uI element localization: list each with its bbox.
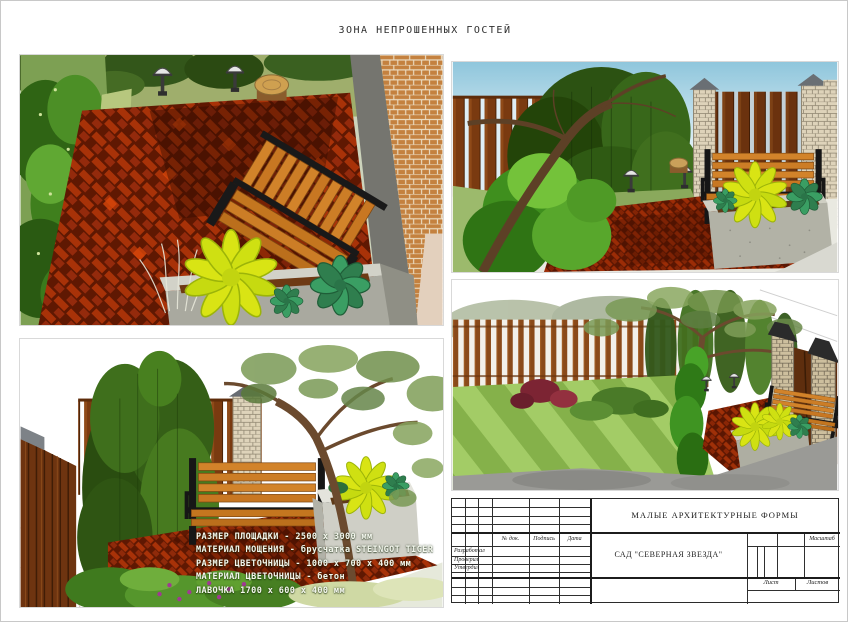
sheet-label: Лист [747,577,795,590]
spec-line: РАЗМЕР ЦВЕТОЧНИЦЫ - 1000 х 700 х 400 мм [196,558,433,571]
spec-line: РАЗМЕР ПЛОЩАДКИ - 2500 х 3000 мм [196,531,433,544]
render-bench-corner [451,61,839,273]
green-hosta-small [713,189,737,213]
bench-corner-illustration [452,62,838,272]
role-developed: Разработал [452,546,492,556]
role-approved: Утвердил [452,564,492,572]
header-date: Дата [559,532,590,546]
green-hosta [310,256,370,316]
green-hosta [787,179,823,215]
scale-label: Масштаб [804,532,840,546]
specifications-overlay: РАЗМЕР ПЛОЩАДКИ - 2500 х 3000 мм МАТЕРИА… [196,531,433,598]
header-doc-number: № док. [492,532,529,546]
stump-table [670,158,688,173]
aerial-courtyard-illustration [20,55,443,325]
spec-line: МАТЕРИАЛ ЦВЕТОЧНИЦЫ - бетон [196,571,433,584]
page-title: ЗОНА НЕПРОШЕННЫХ ГОСТЕЙ [1,25,848,36]
title-block: № док. Подпись Дата Разработал Проверил … [451,498,839,603]
drawing-sheet: ЗОНА НЕПРОШЕННЫХ ГОСТЕЙ [0,0,848,622]
section-title: МАЛЫЕ АРХИТЕКТУРНЫЕ ФОРМЫ [590,499,840,532]
spec-line: ЛАВОЧКА 1700 х 600 х 400 мм [196,585,433,598]
sheets-label: Листов [795,577,840,590]
render-perspective-bench: РАЗМЕР ПЛОЩАДКИ - 2500 х 3000 мм МАТЕРИА… [19,338,444,608]
green-hosta-small [270,285,303,318]
green-hosta [788,415,812,439]
header-signature: Подпись [529,532,559,546]
spec-line: МАТЕРИАЛ МОЩЕНИЯ - брусчатка STEINGOT TI… [196,544,433,557]
render-garden-lawn [451,279,839,491]
render-aerial-courtyard [19,54,444,326]
stump-table [255,75,289,101]
project-name: САД "СЕВЕРНАЯ ЗВЕЗДА" [590,532,747,577]
role-checked: Проверил [452,556,492,564]
garden-lawn-illustration [452,280,838,490]
